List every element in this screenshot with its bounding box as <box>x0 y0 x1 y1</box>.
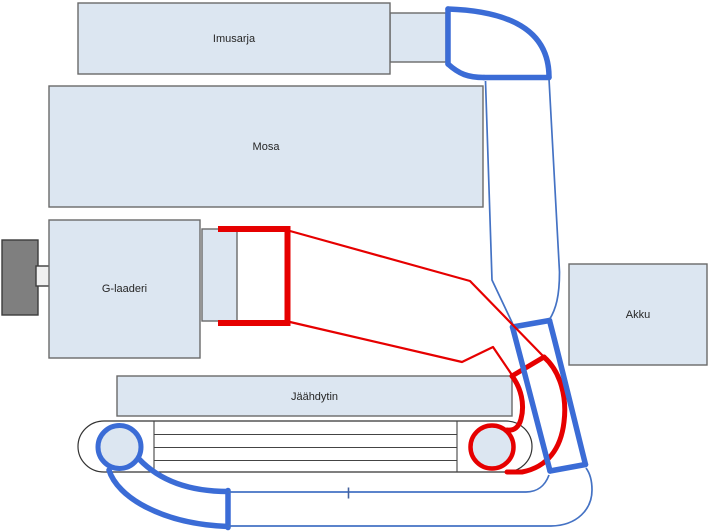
akku-label: Akku <box>626 309 650 321</box>
g-laaderi-label: G-laaderi <box>102 283 147 295</box>
drive-block-box <box>2 240 38 315</box>
blue-bottom-run-bottom-line <box>228 468 592 526</box>
blue-downpipe-right-line <box>549 79 560 320</box>
blue-coupler-bottom-bar <box>550 465 586 472</box>
blue-bottom-run-top-line <box>228 475 549 492</box>
charger-outlet-duct-box <box>202 229 237 321</box>
red-run-lower-line <box>290 322 512 375</box>
jaahdytin-label: Jäähdytin <box>291 391 338 403</box>
imusarja-label: Imusarja <box>213 33 256 45</box>
intake-duct-box <box>390 13 446 62</box>
schematic-page: Imusarja Mosa G-laaderi Jäähdytin Akku <box>0 0 711 532</box>
right-fan-circle <box>471 426 514 469</box>
diagram-canvas: Imusarja Mosa G-laaderi Jäähdytin Akku <box>0 0 711 532</box>
left-fan-circle <box>98 426 141 469</box>
blue-elbow-inner-arc <box>448 64 484 78</box>
blue-downpipe-left-line <box>486 81 514 326</box>
blue-elbow-outer-arc <box>448 9 549 77</box>
mosa-label: Mosa <box>253 141 281 153</box>
red-run-upper-line <box>290 231 544 357</box>
red-pipe-end-cap <box>512 357 544 376</box>
blue-coupler-top-bar <box>513 321 550 328</box>
